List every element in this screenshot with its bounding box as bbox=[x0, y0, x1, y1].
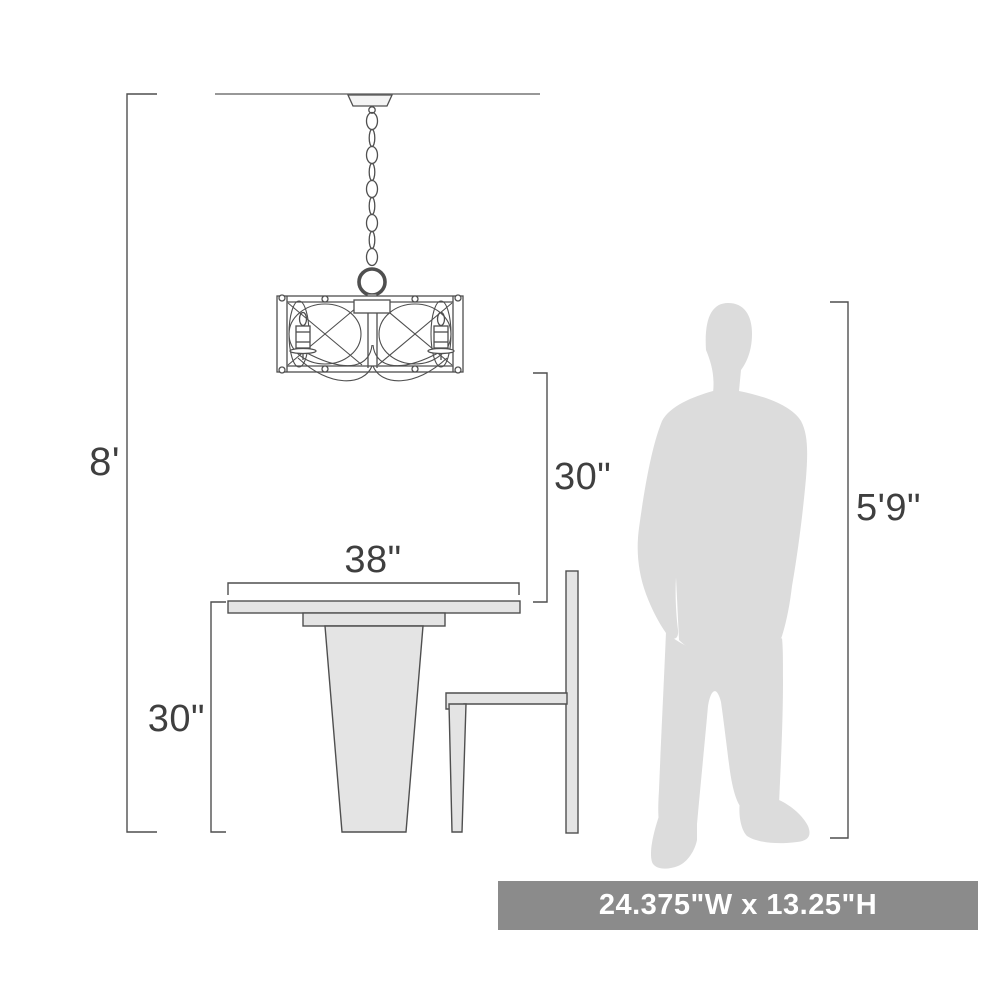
table-top bbox=[228, 601, 520, 613]
diagram-drawing bbox=[0, 0, 1000, 1000]
dimension-line-table-width bbox=[228, 583, 519, 595]
ceiling-canopy bbox=[348, 95, 392, 106]
drum-shade bbox=[277, 295, 463, 381]
dimension-line-person-height bbox=[830, 302, 848, 838]
person-legs bbox=[658, 632, 783, 824]
dimension-label-fixture-to-surface: 30" bbox=[554, 458, 611, 496]
chair-front-leg bbox=[449, 704, 466, 832]
chair-back-post bbox=[566, 571, 578, 833]
size-banner: 24.375"W x 13.25"H bbox=[498, 881, 978, 930]
size-banner-text: 24.375"W x 13.25"H bbox=[599, 889, 877, 922]
person-head bbox=[706, 303, 752, 393]
person-silhouette bbox=[638, 303, 810, 869]
dining-table-drawing bbox=[228, 601, 520, 832]
dimension-label-table-width: 38" bbox=[323, 541, 423, 579]
dimension-label-ceiling-height: 8' bbox=[58, 442, 120, 482]
hang-ring bbox=[359, 269, 385, 295]
dimension-label-person-height: 5'9" bbox=[856, 489, 921, 527]
table-pedestal bbox=[325, 626, 423, 832]
dimension-line-fixture-to-surface bbox=[533, 373, 547, 602]
stem-backplate bbox=[354, 300, 390, 313]
person-torso bbox=[638, 391, 807, 660]
dimension-diagram: 8' 30" 38" 30" 5'9" 24.375"W x 13.25"H bbox=[0, 0, 1000, 1000]
person-right-foot bbox=[739, 800, 809, 843]
hanging-chain bbox=[367, 113, 378, 266]
person-left-foot bbox=[651, 816, 697, 869]
dimension-label-table-height: 30" bbox=[143, 700, 205, 738]
chandelier-drawing bbox=[277, 95, 463, 381]
table-apron bbox=[303, 613, 445, 626]
dimension-line-table-height bbox=[211, 602, 226, 832]
